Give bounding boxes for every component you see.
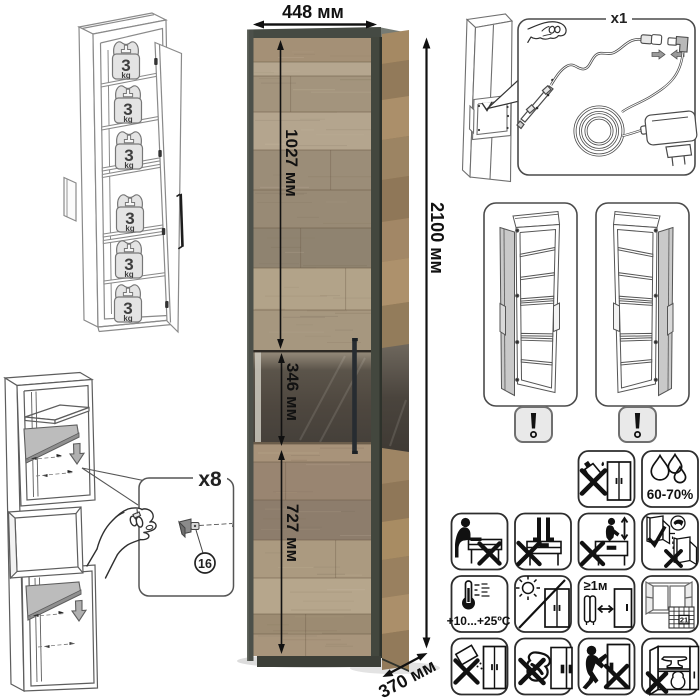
svg-text:+10...+25ºC: +10...+25ºC (447, 614, 511, 628)
svg-text:727 мм: 727 мм (283, 504, 302, 562)
svg-text:346 мм: 346 мм (283, 363, 302, 421)
svg-text:21: 21 (680, 616, 688, 625)
svg-text:448 мм: 448 мм (282, 2, 344, 22)
svg-text:1027 мм: 1027 мм (282, 129, 301, 197)
svg-text:≥1м: ≥1м (584, 578, 608, 593)
svg-text:x8: x8 (198, 468, 222, 491)
svg-text:60-70%: 60-70% (647, 487, 694, 502)
svg-text:2100 мм: 2100 мм (427, 202, 447, 274)
svg-text:x1: x1 (611, 10, 628, 27)
svg-text:16: 16 (198, 557, 212, 571)
